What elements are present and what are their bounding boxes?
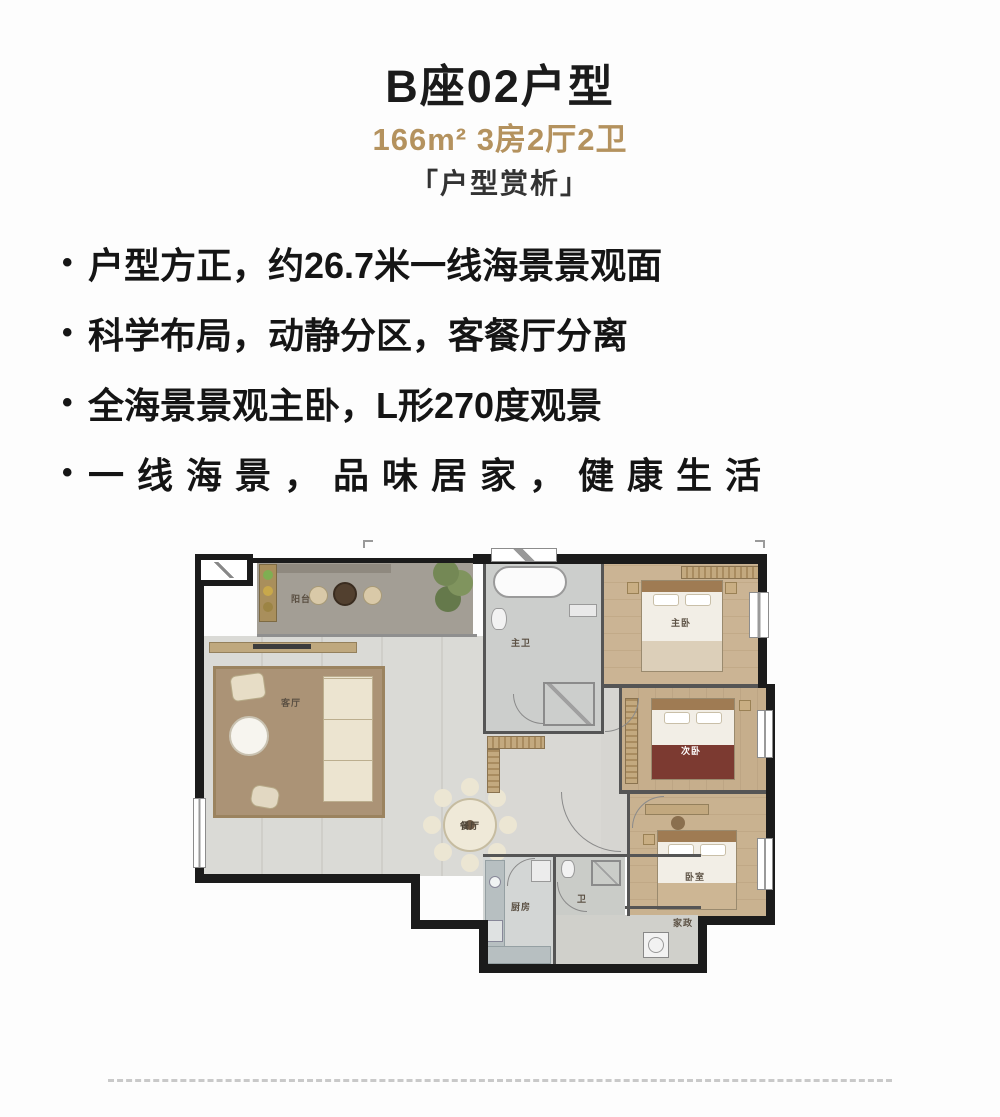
- nightstand: [739, 700, 751, 711]
- balcony-slider: [257, 634, 477, 637]
- selling-point-text: 一线海景，品味居家，健康生活: [88, 447, 774, 499]
- shower-stall: [543, 682, 595, 726]
- room-label-bath2: 卫: [577, 892, 587, 905]
- room-label-living: 客厅: [281, 696, 301, 709]
- desk-chair: [671, 816, 685, 830]
- room-label-kitchen: 厨房: [511, 900, 531, 913]
- room-label-dining: 餐厅: [460, 819, 480, 832]
- plant-icon: [263, 570, 273, 580]
- selling-point-text: 户型方正，约26.7米一线海景景观面: [88, 237, 662, 289]
- bullet-marker: •: [62, 456, 88, 490]
- wall: [625, 906, 701, 909]
- selling-points-list: •户型方正，约26.7米一线海景景观面 •科学布局，动静分区，客餐厅分离 •全海…: [62, 228, 962, 508]
- selling-point: •科学布局，动静分区，客餐厅分离: [62, 298, 962, 368]
- room-label-utility: 家政: [673, 916, 693, 929]
- tree-icon: [433, 560, 459, 586]
- room-label-master-bath: 主卫: [511, 636, 531, 649]
- selling-point-text: 科学布局，动静分区，客餐厅分离: [88, 307, 628, 359]
- pillow: [700, 844, 726, 856]
- wall: [619, 688, 622, 790]
- shower-stall: [591, 860, 621, 886]
- headboard: [652, 699, 734, 710]
- wall: [479, 964, 707, 973]
- selling-point-text: 全海景景观主卧，L形270度观景: [88, 377, 602, 429]
- armchair: [229, 672, 266, 702]
- page: B座02户型 166m² 3房2厅2卫 「户型赏析」 •户型方正，约26.7米一…: [0, 0, 1000, 1117]
- balcony-table: [333, 582, 357, 606]
- page-title: B座02户型: [0, 50, 1000, 115]
- washer-drum: [648, 937, 664, 953]
- sofa: [323, 676, 373, 802]
- nightstand: [725, 582, 737, 594]
- window: [193, 798, 206, 868]
- wall: [601, 562, 604, 734]
- wall: [195, 874, 419, 883]
- headboard: [642, 581, 722, 592]
- room-label-master-bedroom: 主卧: [671, 616, 691, 629]
- kitchen-sink: [489, 876, 501, 888]
- dashed-divider: [108, 1079, 892, 1082]
- bath-vanity: [569, 604, 597, 617]
- wall: [698, 916, 775, 925]
- kitchen-counter: [485, 946, 551, 964]
- dimension-tick: [755, 540, 765, 548]
- nightstand: [643, 834, 655, 845]
- section-tagline: 「户型赏析」: [0, 162, 1000, 202]
- coffee-table: [229, 716, 269, 756]
- window: [757, 838, 773, 890]
- storage-cabinet: [487, 736, 545, 749]
- balcony-bench: [261, 564, 391, 573]
- wall: [619, 790, 767, 794]
- floor-plan: 阳台 客厅 餐厅 主卫 主卧 次卧 卧室 厨房 卫 家政: [195, 548, 775, 978]
- stove: [487, 920, 503, 942]
- ac-unit-box: [195, 554, 253, 586]
- room-label-bedroom2: 次卧: [681, 744, 701, 757]
- pillow: [653, 594, 679, 606]
- bed-2: [651, 698, 735, 780]
- wall: [411, 920, 487, 929]
- room-label-bedroom3: 卧室: [685, 870, 705, 883]
- wall: [601, 684, 767, 688]
- bullet-marker: •: [62, 246, 88, 280]
- pillow: [664, 712, 690, 724]
- bathtub: [493, 566, 567, 598]
- tv: [253, 644, 311, 649]
- blanket: [642, 641, 722, 671]
- pillow: [685, 594, 711, 606]
- selling-point: •一线海景，品味居家，健康生活: [62, 438, 962, 508]
- wall: [483, 854, 701, 857]
- window: [491, 548, 557, 562]
- room-label-balcony: 阳台: [291, 592, 311, 605]
- wall: [251, 558, 477, 563]
- toilet: [491, 608, 507, 630]
- selling-point: •户型方正，约26.7米一线海景景观面: [62, 228, 962, 298]
- bullet-marker: •: [62, 316, 88, 350]
- unit-specs: 166m² 3房2厅2卫: [0, 114, 1000, 159]
- bay-window: [749, 592, 769, 638]
- wall: [483, 562, 486, 734]
- nightstand: [627, 582, 639, 594]
- window: [757, 710, 773, 758]
- balcony-chair: [309, 586, 328, 605]
- wall: [553, 854, 556, 964]
- storage-cabinet: [487, 749, 500, 793]
- wall: [483, 731, 603, 734]
- bullet-marker: •: [62, 386, 88, 420]
- pillow: [696, 712, 722, 724]
- selling-point: •全海景景观主卧，L形270度观景: [62, 368, 962, 438]
- toilet: [561, 860, 575, 878]
- wardrobe: [681, 566, 761, 579]
- headboard: [658, 831, 736, 842]
- balcony-chair: [363, 586, 382, 605]
- dimension-tick: [363, 540, 373, 548]
